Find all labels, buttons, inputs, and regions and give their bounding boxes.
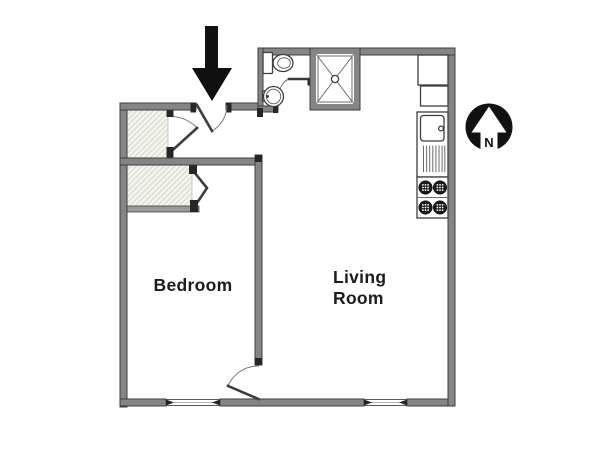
stove-icon: [417, 177, 448, 218]
kitchen: [417, 55, 448, 218]
shower-icon: [310, 48, 360, 110]
entry-arrow-icon: [192, 26, 232, 101]
hall-closet: [127, 105, 197, 159]
north-label: N: [484, 135, 493, 150]
living-room-window: [364, 400, 407, 406]
bedroom-window: [166, 400, 220, 406]
bedroom-label: Bedroom: [154, 275, 233, 295]
living-room-label-line2: Room: [333, 288, 384, 308]
refrigerator-icon: [418, 55, 448, 85]
floor-plan-drawing: N Bedroom Living Room: [0, 0, 600, 450]
toilet-icon: [263, 53, 293, 74]
bedroom-closet: [122, 164, 207, 212]
north-indicator: N: [466, 104, 513, 151]
floor-plan: N Bedroom Living Room: [0, 0, 600, 450]
bathroom-sink-icon: [263, 87, 284, 107]
entry-door: [197, 105, 227, 131]
living-room-label-line1: Living: [333, 267, 386, 287]
bedroom-door: [228, 366, 259, 399]
kitchen-cabinet-icon: [421, 86, 449, 106]
outer-walls: [120, 48, 455, 407]
